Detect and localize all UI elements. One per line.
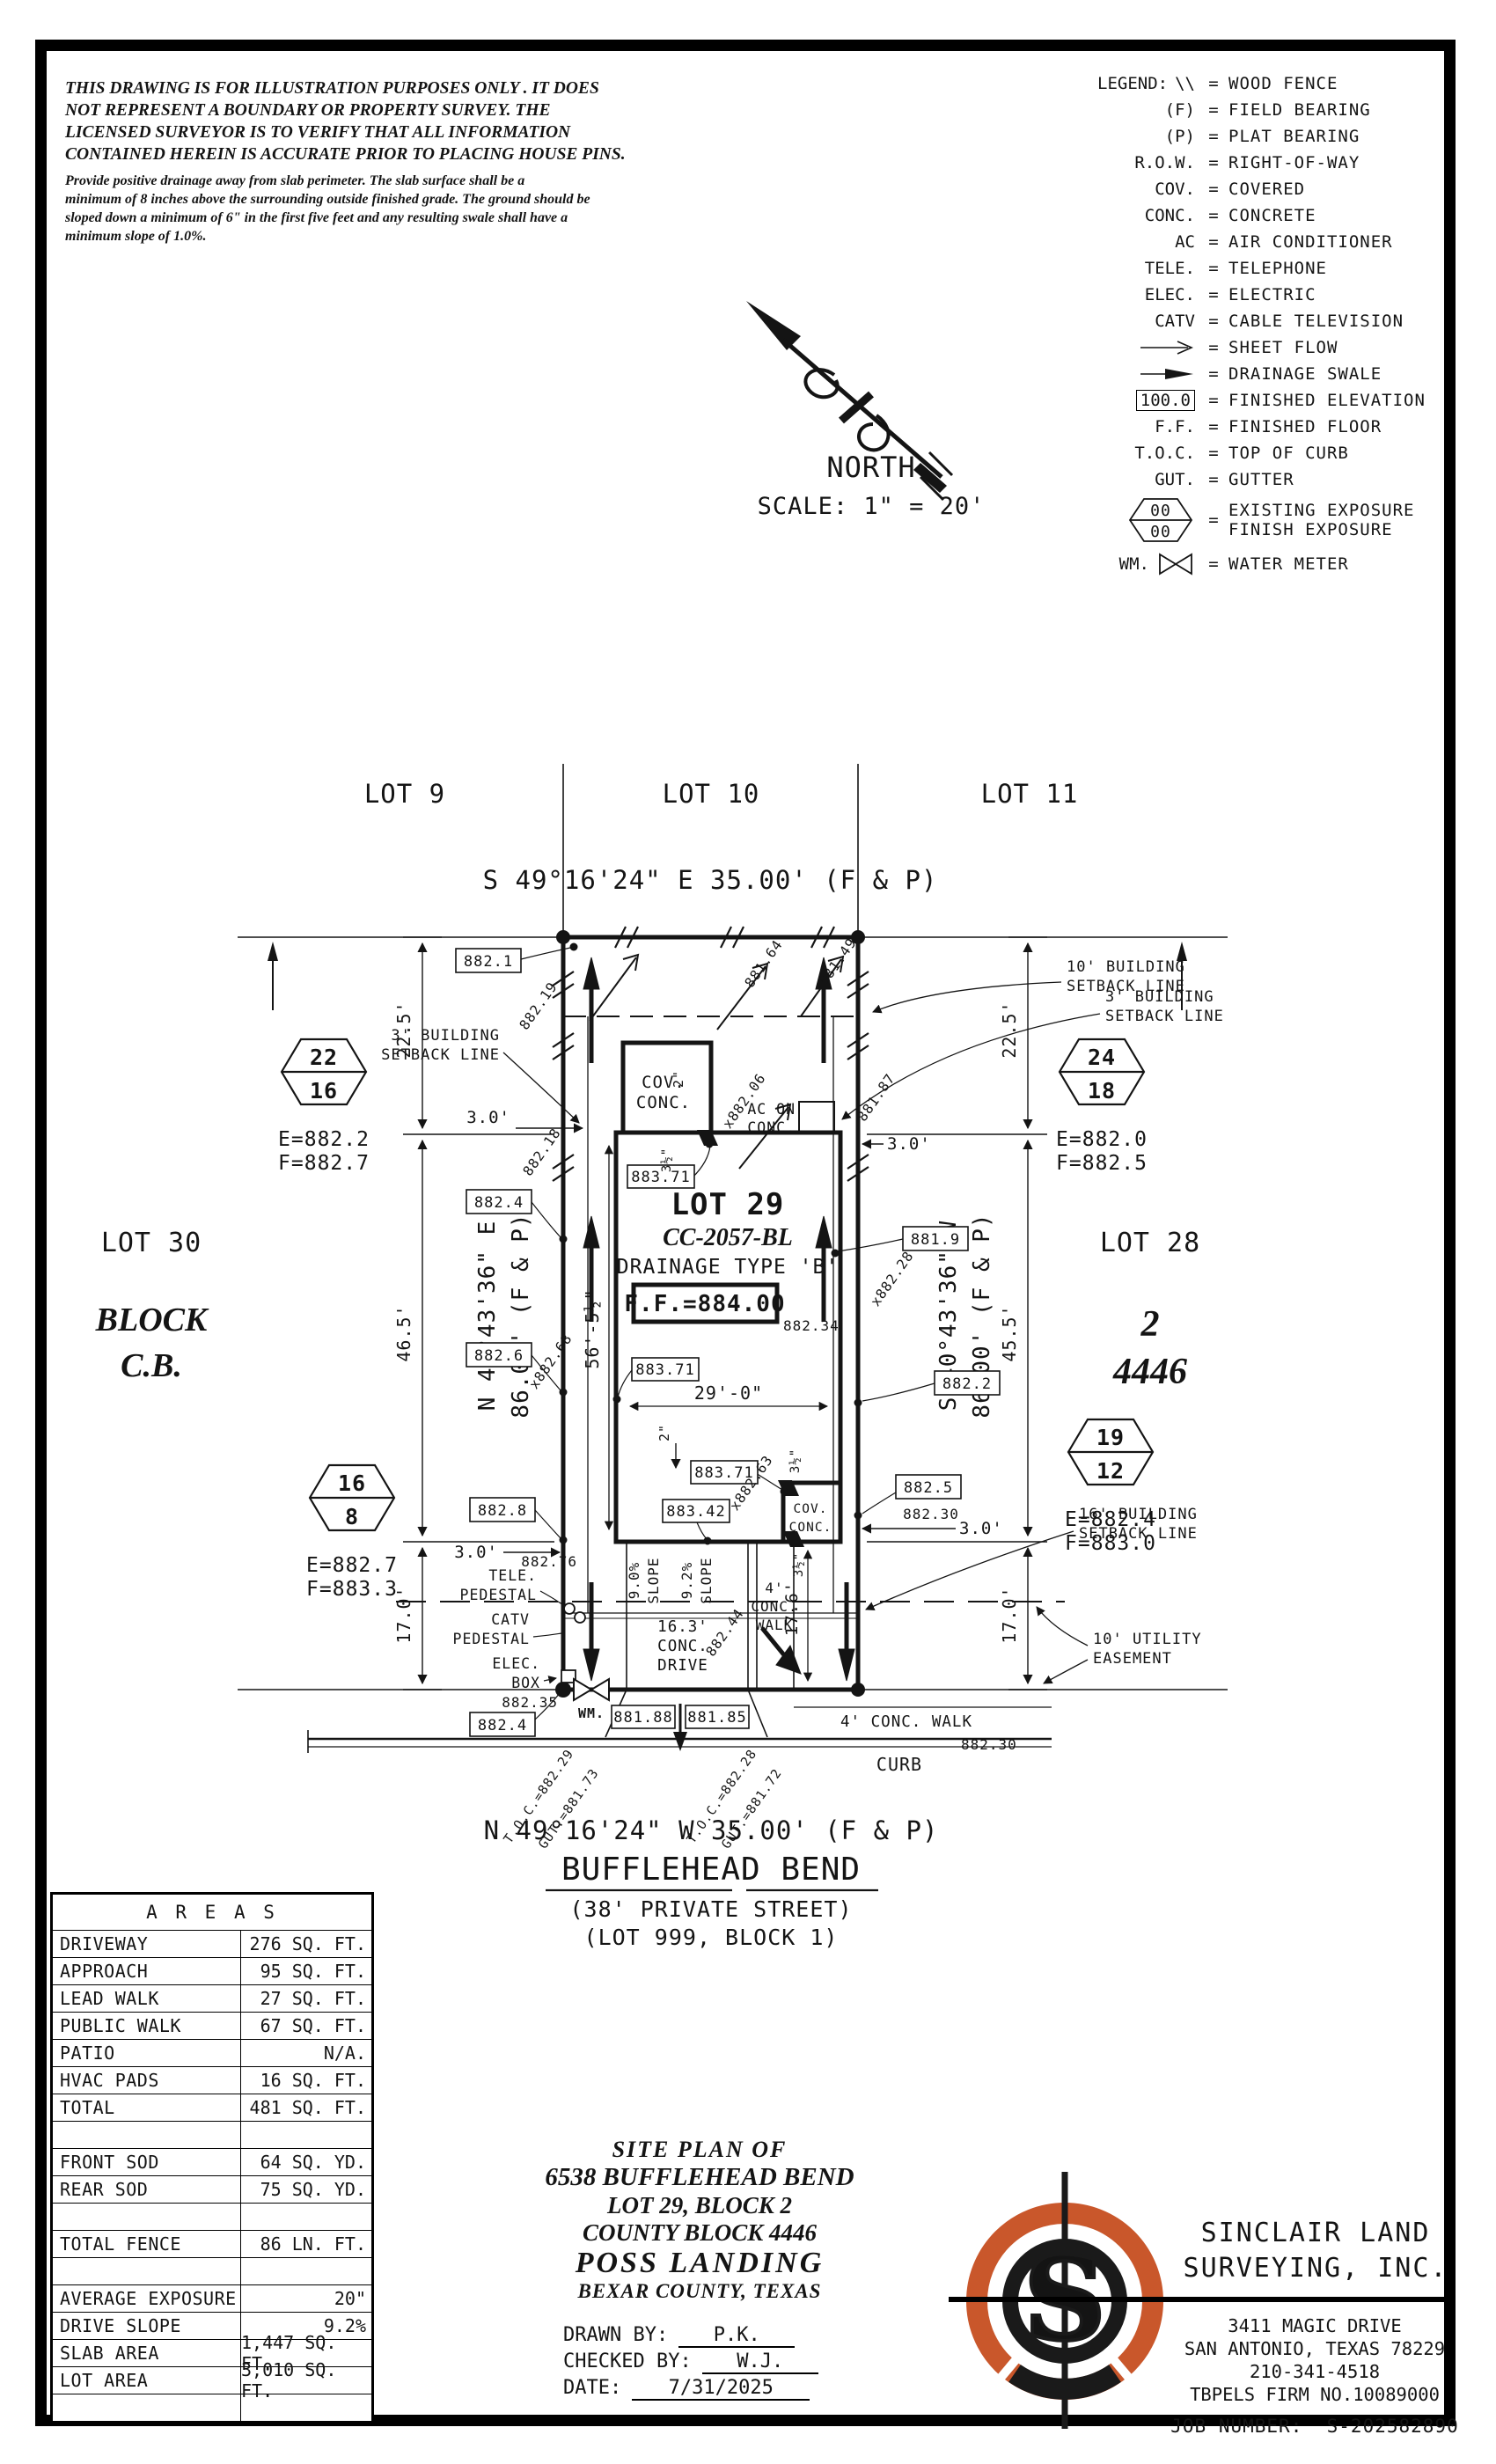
legend-row: GUT. = GUTTER bbox=[1061, 466, 1426, 493]
areas-row-blank bbox=[53, 2257, 371, 2284]
disclaimer-line: LICENSED SURVEYOR IS TO VERIFY THAT ALL … bbox=[65, 121, 646, 143]
sheet-flow-arrows bbox=[590, 955, 843, 1169]
hex1-existing: 22 bbox=[310, 1045, 338, 1070]
disclaimer-line: THIS DRAWING IS FOR ILLUSTRATION PURPOSE… bbox=[65, 77, 646, 99]
elevation-box-symbol: 100.0 bbox=[1136, 390, 1195, 411]
left-3ft-setback-label1: 3' BUILDING bbox=[391, 1027, 500, 1045]
water-meter-symbol bbox=[574, 1679, 609, 1700]
left-bearing-label: N 40°43'36" E bbox=[474, 1221, 501, 1412]
elev-882-1: 882.1 bbox=[464, 953, 513, 971]
drive-label3: DRIVE bbox=[657, 1657, 708, 1675]
rear-10ft-setback-label1: 10' BUILDING bbox=[1067, 958, 1185, 976]
left-3ft-setback-leader bbox=[503, 1052, 579, 1123]
porch-3half-top: 3½" bbox=[788, 1448, 803, 1473]
hex1-finish: 16 bbox=[310, 1078, 338, 1104]
dim-22-5-right: 22.5' bbox=[999, 1001, 1020, 1058]
elev-881-9: 881.9 bbox=[911, 1231, 960, 1249]
elev-881-88: 881.88 bbox=[613, 1709, 672, 1727]
legend-row: F.F. = FINISHED FLOOR bbox=[1061, 414, 1426, 440]
drawn-by-value: P.K. bbox=[678, 2324, 795, 2348]
lot10-label: LOT 10 bbox=[663, 779, 760, 809]
logo-crosshair-horizontal bbox=[949, 2297, 1448, 2302]
hex3-existing: 19 bbox=[1096, 1425, 1125, 1450]
catv-pedestal-symbol bbox=[575, 1612, 585, 1623]
elev-881-85: 881.85 bbox=[687, 1709, 746, 1727]
hex4-e: E=882.7 bbox=[306, 1554, 398, 1577]
patio-conc-label: CONC. bbox=[636, 1093, 691, 1112]
elev-882-2: 882.2 bbox=[942, 1375, 992, 1393]
legend-row-drainage-swale: = DRAINAGE SWALE bbox=[1061, 361, 1426, 387]
firm-name: SINCLAIR LAND SURVEYING, INC. bbox=[1169, 2216, 1463, 2286]
legend-row: AC = AIR CONDITIONER bbox=[1061, 229, 1426, 255]
front-16ft-setback-leader bbox=[866, 1531, 1074, 1610]
firm-street: 3411 MAGIC DRIVE bbox=[1165, 2314, 1464, 2337]
title-address: 6538 BUFFLEHEAD BEND bbox=[488, 2163, 911, 2192]
date-value: 7/31/2025 bbox=[632, 2377, 810, 2401]
spot-881-64: 881.64 bbox=[742, 937, 786, 991]
title-block: SITE PLAN OF 6538 BUFFLEHEAD BEND LOT 29… bbox=[488, 2137, 911, 2401]
elev-882-6: 882.6 bbox=[474, 1347, 524, 1365]
curb-label: CURB bbox=[876, 1754, 922, 1775]
dim-17-0-right: 17.0' bbox=[999, 1586, 1020, 1643]
north-label: NORTH bbox=[826, 451, 915, 484]
patio-3half-label: 3½" bbox=[660, 1148, 674, 1172]
water-meter-icon bbox=[1156, 553, 1195, 576]
legend-row-wood-fence: LEGEND: \\ = WOOD FENCE bbox=[1061, 70, 1426, 97]
elec-label1: ELEC. bbox=[492, 1655, 540, 1672]
legend-row: (F) = FIELD BEARING bbox=[1061, 97, 1426, 123]
lot30-label: LOT 30 bbox=[101, 1228, 202, 1258]
utility-easement-label2: EASEMENT bbox=[1093, 1650, 1172, 1668]
patio-2in-label: 2" bbox=[671, 1070, 686, 1088]
svg-text:00: 00 bbox=[1150, 502, 1171, 520]
hex1-f: F=882.7 bbox=[278, 1152, 370, 1175]
spot-882-44: 882.44 bbox=[703, 1606, 747, 1660]
walk-label3: WALK bbox=[756, 1617, 794, 1633]
legend-row: T.O.C. = TOP OF CURB bbox=[1061, 440, 1426, 466]
areas-row: TOTAL481 SQ. FT. bbox=[53, 2094, 371, 2121]
dim-3-0-left-top: 3.0' bbox=[466, 1108, 510, 1127]
areas-row: REAR SOD75 SQ. YD. bbox=[53, 2175, 371, 2203]
legend-row: COV. = COVERED bbox=[1061, 176, 1426, 202]
spot-882-30: 882.30 bbox=[903, 1506, 959, 1522]
hex4-f: F=883.3 bbox=[306, 1578, 398, 1601]
utility-easement-label1: 10' UTILITY bbox=[1093, 1631, 1202, 1648]
title-line: SITE PLAN OF bbox=[488, 2137, 911, 2163]
walk-label1: 4' bbox=[765, 1580, 783, 1596]
hex3-e: E=882.4 bbox=[1065, 1508, 1156, 1531]
drive-label2: CONC. bbox=[657, 1638, 708, 1655]
neighbor-flow-arrows bbox=[268, 942, 1187, 1010]
right-3ft-setback-label2: SETBACK LINE bbox=[1105, 1008, 1224, 1025]
dim-3-0-right-bottom: 3.0' bbox=[959, 1519, 1003, 1538]
title-lot-block: LOT 29, BLOCK 2 bbox=[488, 2192, 911, 2219]
ac-label1: AC ON bbox=[747, 1101, 796, 1118]
left-3ft-setback-label2: SETBACK LINE bbox=[381, 1046, 500, 1064]
areas-row: APPROACH95 SQ. FT. bbox=[53, 1957, 371, 1984]
spot-882-18: 882.18 bbox=[520, 1126, 564, 1179]
signature-fields: DRAWN BY: P.K. CHECKED BY: W.J. DATE: 7/… bbox=[563, 2324, 880, 2401]
dim-46-5-left: 46.5' bbox=[393, 1304, 414, 1361]
scale-label: SCALE: 1" = 20' bbox=[758, 493, 986, 520]
utility-easement-leader2 bbox=[1044, 1660, 1088, 1683]
ac-pad bbox=[799, 1102, 834, 1133]
slope-9-2: 9.2% bbox=[678, 1562, 695, 1600]
street-type: (38' PRIVATE STREET) bbox=[569, 1896, 852, 1922]
block-label: BLOCK bbox=[95, 1302, 209, 1338]
tele-label2: PEDESTAL bbox=[460, 1587, 537, 1603]
cb4446-label: 4446 bbox=[1112, 1352, 1187, 1392]
elev-883-71b: 883.71 bbox=[635, 1361, 694, 1379]
areas-title: A R E A S bbox=[53, 1895, 371, 1930]
checked-by-value: W.J. bbox=[702, 2350, 818, 2374]
sheet-flow-arrow-icon bbox=[1139, 341, 1195, 355]
catv-label1: CATV bbox=[491, 1611, 530, 1628]
disclaimer-line: CONTAINED HEREIN IS ACCURATE PRIOR TO PL… bbox=[65, 143, 646, 165]
hex2-e: E=882.0 bbox=[1056, 1128, 1148, 1151]
legend-row: TELE. = TELEPHONE bbox=[1061, 255, 1426, 282]
hex2-existing: 24 bbox=[1088, 1045, 1116, 1070]
slope-label2: SLOPE bbox=[698, 1557, 715, 1603]
drainage-swale-arrow-icon bbox=[1139, 367, 1195, 381]
elev-882-5: 882.5 bbox=[904, 1479, 953, 1497]
disclaimer-note: THIS DRAWING IS FOR ILLUSTRATION PURPOSE… bbox=[65, 77, 646, 246]
areas-row: DRIVEWAY276 SQ. FT. bbox=[53, 1930, 371, 1957]
catv-label2: PEDESTAL bbox=[453, 1631, 530, 1647]
site-plan-sheet: { "disclaimer": { "l1": "THIS DRAWING IS… bbox=[0, 0, 1496, 2464]
dim-3-0-right-top: 3.0' bbox=[887, 1134, 931, 1154]
firm-phone: 210-341-4518 bbox=[1165, 2360, 1464, 2383]
dim-56-5: 56'-5½" bbox=[582, 1288, 603, 1368]
areas-row-blank bbox=[53, 2394, 371, 2421]
firm-city: SAN ANTONIO, TEXAS 78229 bbox=[1165, 2337, 1464, 2360]
dim-3-0-left-bottom: 3.0' bbox=[454, 1543, 498, 1562]
wood-fence-symbol: \\ bbox=[1175, 74, 1195, 93]
areas-row: LEAD WALK27 SQ. FT. bbox=[53, 1984, 371, 2012]
exposure-hexagon-icon: 00 00 bbox=[1126, 495, 1195, 546]
legend-row-sheet-flow: = SHEET FLOW bbox=[1061, 334, 1426, 361]
firm-address: 3411 MAGIC DRIVE SAN ANTONIO, TEXAS 7822… bbox=[1165, 2314, 1464, 2438]
legend-row-water-meter: WM. = WATER METER bbox=[1061, 547, 1426, 581]
approach-arrow-head bbox=[673, 1732, 687, 1751]
areas-row-blank bbox=[53, 2203, 371, 2230]
areas-row: FRONT SOD64 SQ. YD. bbox=[53, 2148, 371, 2175]
site-plan-drawing: LOT 9 LOT 10 LOT 11 S 49°16'24" E 35.00'… bbox=[53, 748, 1232, 1971]
hex3-finish: 12 bbox=[1096, 1458, 1125, 1484]
rear-bearing-label: S 49°16'24" E 35.00' (F & P) bbox=[483, 865, 938, 895]
legend-row: CONC. = CONCRETE bbox=[1061, 202, 1426, 229]
ac-label2: CONC. bbox=[747, 1119, 796, 1136]
tele-label1: TELE. bbox=[488, 1567, 537, 1584]
title-county-block: COUNTY BLOCK 4446 bbox=[488, 2219, 911, 2247]
elev-882-4-front: 882.4 bbox=[478, 1717, 527, 1734]
hex1-e: E=882.2 bbox=[278, 1128, 370, 1151]
areas-row: LOT AREA3,010 SQ. FT. bbox=[53, 2366, 371, 2394]
legend-row: (P) = PLAT BEARING bbox=[1061, 123, 1426, 150]
areas-row: TOTAL FENCE86 LN. FT. bbox=[53, 2230, 371, 2257]
title-subdivision: POSS LANDING bbox=[488, 2247, 911, 2280]
tele-pedestal-symbol bbox=[564, 1603, 575, 1614]
legend-row: R.O.W. = RIGHT-OF-WAY bbox=[1061, 150, 1426, 176]
svg-text:00: 00 bbox=[1150, 523, 1171, 541]
spot-882-28: x882.28 bbox=[868, 1248, 917, 1309]
street-name: BUFFLEHEAD BEND bbox=[561, 1852, 861, 1888]
areas-row-blank bbox=[53, 2121, 371, 2148]
date-label: DATE: bbox=[563, 2377, 621, 2399]
slope-9-0: 9.0% bbox=[626, 1562, 642, 1600]
porch-cov-label: COV. bbox=[794, 1502, 828, 1516]
dim-45-5-right: 45.5' bbox=[999, 1304, 1020, 1361]
areas-row: AVERAGE EXPOSURE20" bbox=[53, 2284, 371, 2312]
front-bearing-label: N 49°16'24" W 35.00' (F & P) bbox=[484, 1815, 939, 1845]
north-arrow-block: NORTH SCALE: 1" = 20' bbox=[722, 290, 1021, 546]
lot29-label: LOT 29 bbox=[671, 1187, 785, 1222]
rear-10ft-setback-leader bbox=[873, 982, 1061, 1012]
elev-883-42: 883.42 bbox=[666, 1503, 725, 1521]
elev-882-8: 882.8 bbox=[478, 1502, 527, 1520]
cb-label: C.B. bbox=[121, 1347, 182, 1384]
cc-number: CC-2057-BL bbox=[663, 1224, 793, 1251]
utility-easement-leader1 bbox=[1037, 1607, 1088, 1646]
legend-row-finished-elevation: 100.0 = FINISHED ELEVATION bbox=[1061, 387, 1426, 414]
lot9-label: LOT 9 bbox=[364, 779, 445, 809]
rear-10ft-setback-label2: SETBACK LINE bbox=[1067, 978, 1185, 995]
hex2-f: F=882.5 bbox=[1056, 1152, 1148, 1175]
disclaimer-line: NOT REPRESENT A BOUNDARY OR PROPERTY SUR… bbox=[65, 99, 646, 121]
checked-by-label: CHECKED BY: bbox=[563, 2350, 692, 2372]
title-county: BEXAR COUNTY, TEXAS bbox=[488, 2280, 911, 2303]
spot-882-34: 882.34 bbox=[783, 1317, 840, 1334]
legend: LEGEND: \\ = WOOD FENCE (F) = FIELD BEAR… bbox=[1061, 70, 1426, 581]
elev-882-4: 882.4 bbox=[474, 1194, 524, 1212]
drawn-by-label: DRAWN BY: bbox=[563, 2324, 668, 2346]
drainage-type: DRAINAGE TYPE 'B' bbox=[617, 1256, 839, 1279]
legend-row: CATV = CABLE TELEVISION bbox=[1061, 308, 1426, 334]
slope-label1: SLOPE bbox=[645, 1557, 662, 1603]
wm-label: WM. bbox=[578, 1705, 605, 1721]
firm-tbpels: TBPELS FIRM NO.10089000 bbox=[1165, 2383, 1464, 2406]
elec-label2: BOX bbox=[511, 1675, 540, 1691]
areas-row: PUBLIC WALK67 SQ. FT. bbox=[53, 2012, 371, 2039]
areas-row: HVAC PADS16 SQ. FT. bbox=[53, 2066, 371, 2094]
lot11-label: LOT 11 bbox=[981, 779, 1079, 809]
areas-table: A R E A S DRIVEWAY276 SQ. FT. APPROACH95… bbox=[50, 1892, 374, 2424]
spot-882-19: 882.19 bbox=[517, 979, 561, 1033]
drainage-note: Provide positive drainage away from slab… bbox=[65, 172, 646, 246]
left-bearing-dist: 86.00' (F & P) bbox=[508, 1213, 534, 1418]
hex2-finish: 18 bbox=[1088, 1078, 1116, 1104]
public-walk-label: 4' CONC. WALK bbox=[840, 1713, 972, 1731]
spot-882-35: 882.35 bbox=[502, 1694, 558, 1711]
spot-881-87: 881.87 bbox=[854, 1071, 898, 1125]
areas-row: PATION/A. bbox=[53, 2039, 371, 2066]
job-number: JOB NUMBER: S-202582890 bbox=[1165, 2415, 1464, 2438]
street-lot: (LOT 999, BLOCK 1) bbox=[584, 1925, 839, 1950]
lot28-label: LOT 28 bbox=[1100, 1228, 1200, 1258]
walk-label2: CONC. bbox=[751, 1598, 797, 1615]
hex3-f: F=883.0 bbox=[1065, 1532, 1156, 1555]
dim-29-0: 29'-0" bbox=[694, 1382, 763, 1404]
hex4-finish: 8 bbox=[345, 1504, 359, 1529]
drive-label1: 16.3' bbox=[657, 1618, 708, 1636]
porch-conc-label: CONC. bbox=[789, 1521, 832, 1535]
block2-label: 2 bbox=[1140, 1304, 1160, 1345]
hex4-existing: 16 bbox=[338, 1470, 366, 1496]
legend-row-exposure: 00 00 = EXISTING EXPOSURE FINISH EXPOSUR… bbox=[1061, 493, 1426, 547]
spot-882-30-front: 882.30 bbox=[961, 1736, 1017, 1753]
drive-2in-label: 2" bbox=[656, 1424, 672, 1441]
legend-row: ELEC. = ELECTRIC bbox=[1061, 282, 1426, 308]
ff-elevation: F.F.=884.00 bbox=[624, 1291, 785, 1317]
legend-title: LEGEND: bbox=[1097, 74, 1168, 93]
porch-3half-bottom: 3½" bbox=[792, 1552, 806, 1577]
